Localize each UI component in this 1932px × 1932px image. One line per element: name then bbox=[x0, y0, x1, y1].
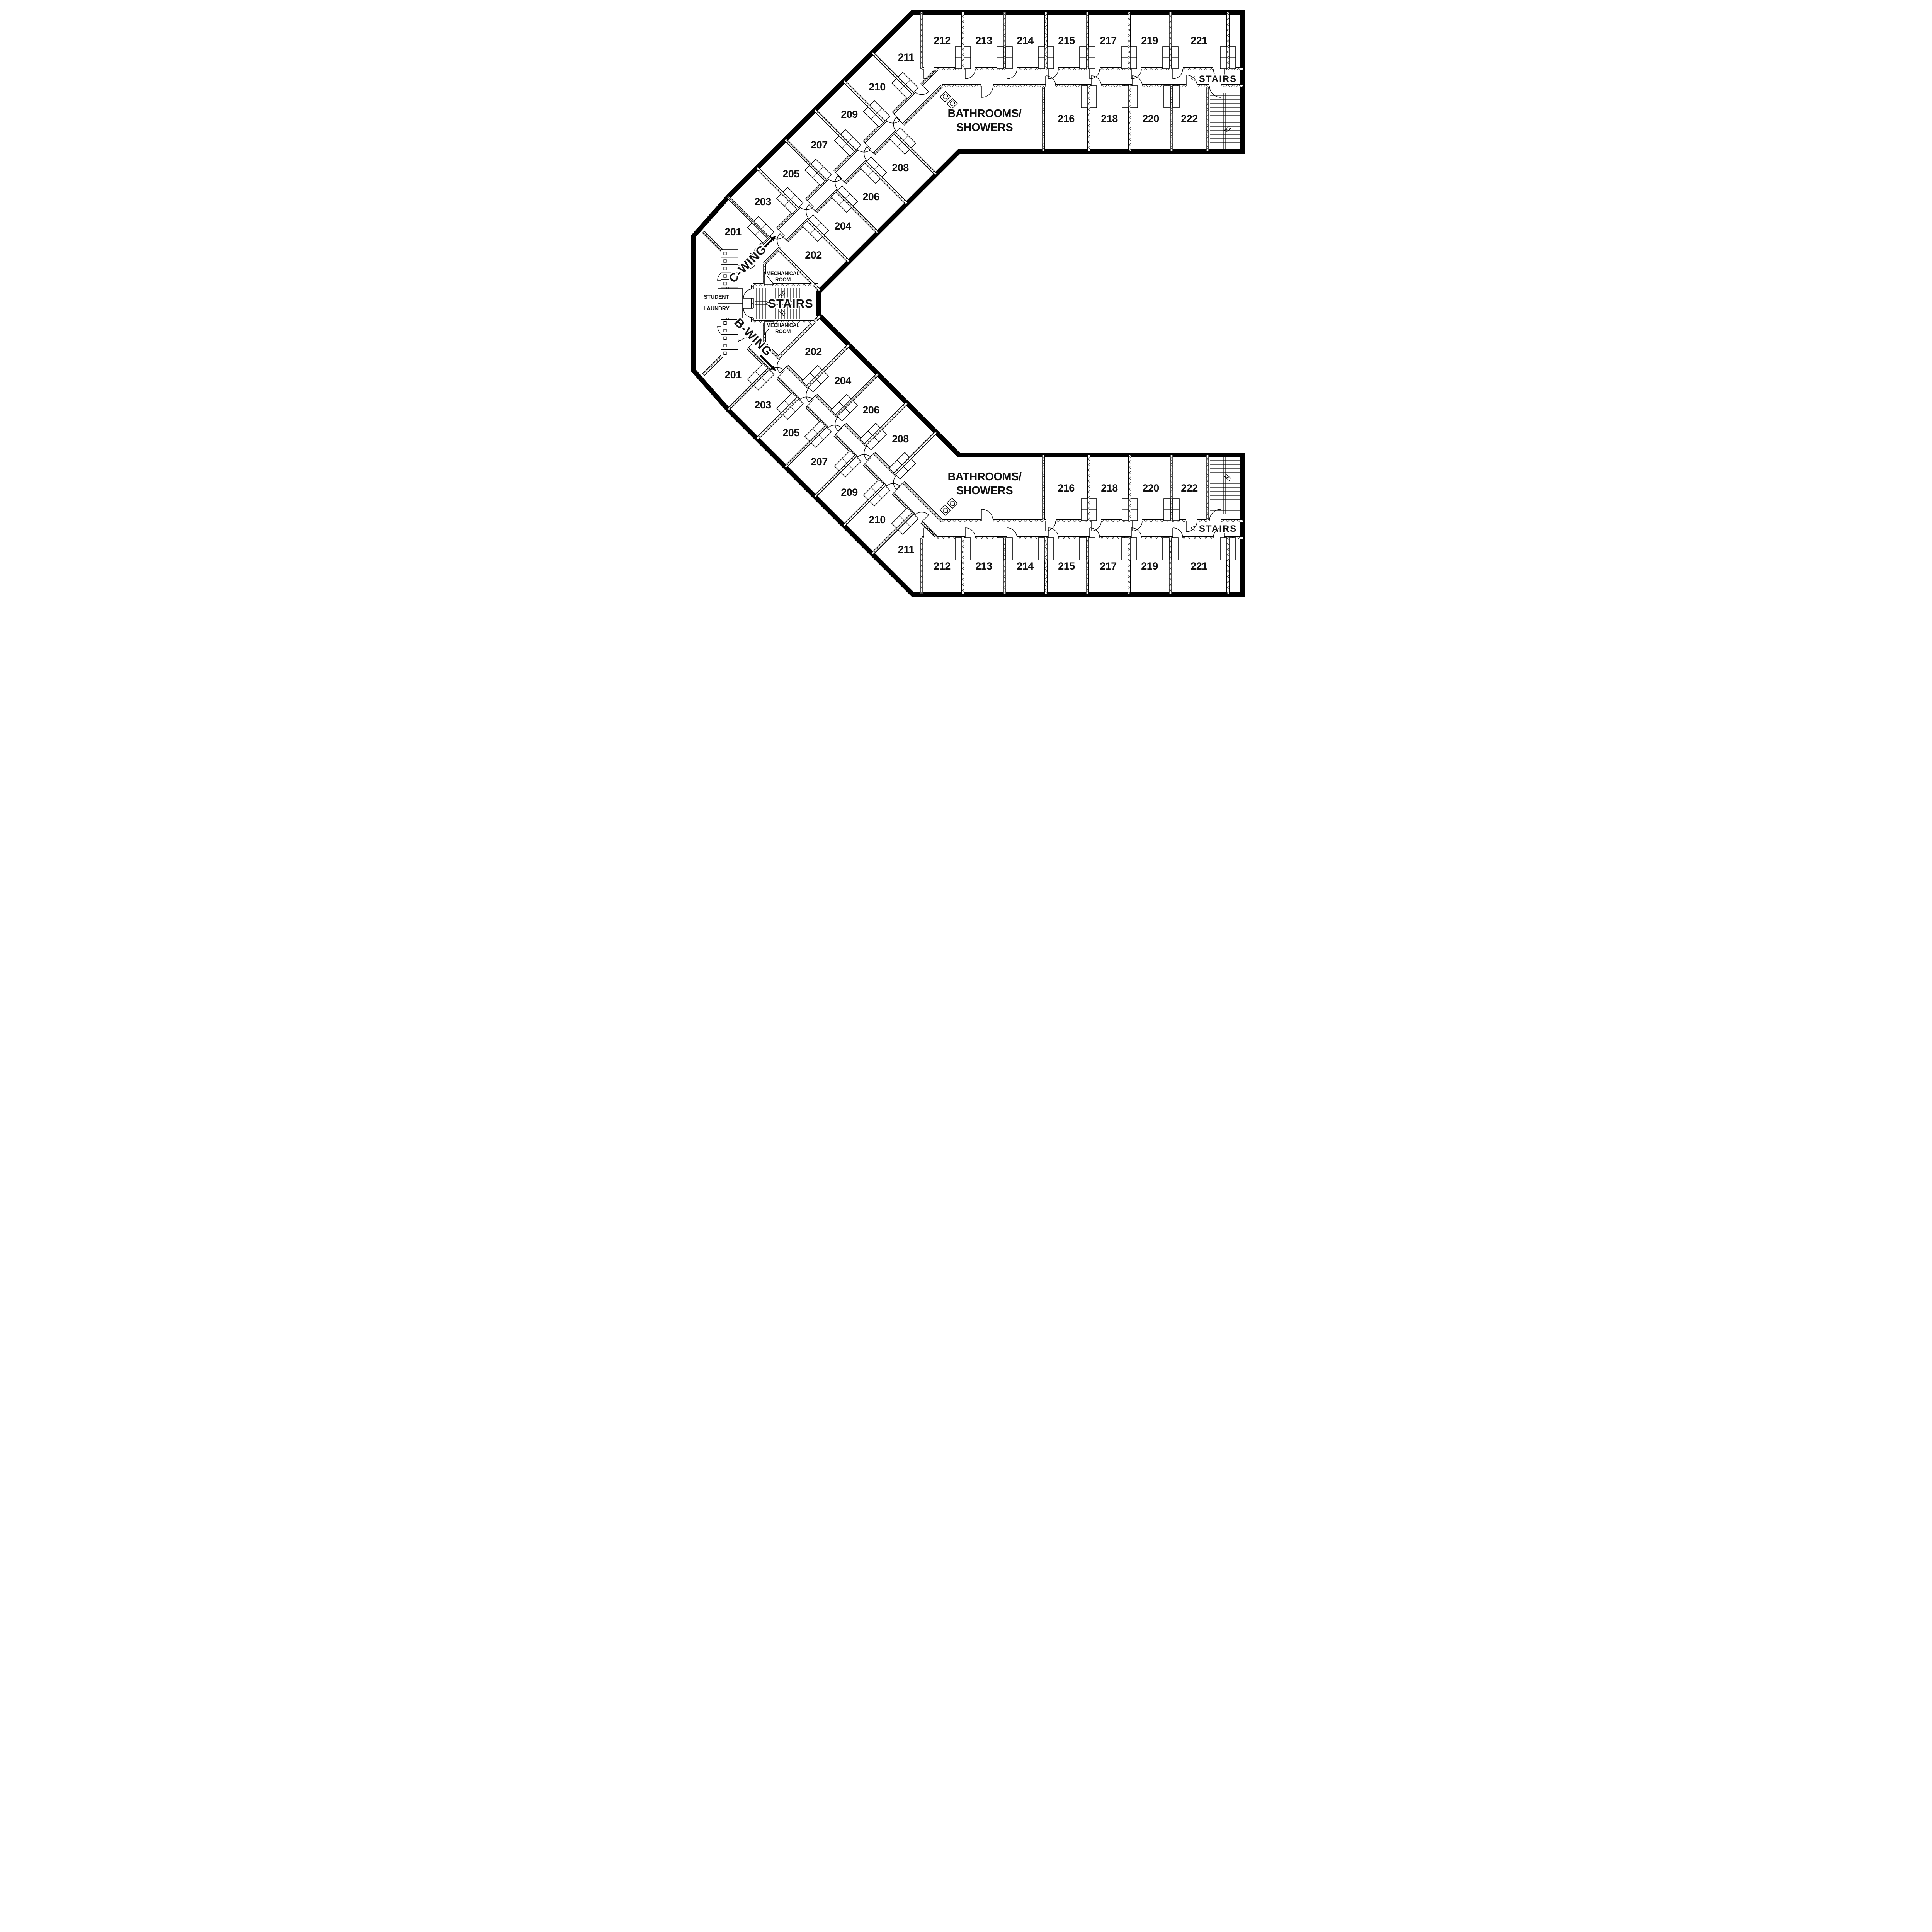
room-label-222-bottom: 222 bbox=[1181, 482, 1198, 494]
room-label-204-bottom: 204 bbox=[834, 375, 851, 386]
room-label-203-bottom: 203 bbox=[754, 399, 771, 411]
room-label-212-bottom: 212 bbox=[934, 560, 951, 572]
student-laundry-line1: STUDENT bbox=[704, 294, 730, 300]
c-wing-geometry bbox=[693, 12, 1243, 303]
student-laundry-line2: LAUNDRY bbox=[704, 306, 730, 312]
room-label-210-bottom: 210 bbox=[869, 514, 886, 526]
room-label-208-top: 208 bbox=[892, 162, 909, 173]
room-label-219-bottom: 219 bbox=[1141, 560, 1158, 572]
room-label-209-bottom: 209 bbox=[841, 486, 858, 498]
bathrooms-label-top-line2: SHOWERS bbox=[956, 121, 1013, 134]
room-label-211-top: 211 bbox=[898, 51, 915, 63]
bathroom-sinks bbox=[940, 92, 957, 109]
room-label-202-bottom: 202 bbox=[805, 346, 822, 357]
room-label-207-top: 207 bbox=[811, 139, 828, 151]
room-label-211-bottom: 211 bbox=[898, 544, 915, 555]
room-label-205-bottom: 205 bbox=[782, 427, 799, 439]
room-label-220-top: 220 bbox=[1142, 113, 1159, 124]
b-wing-geometry bbox=[693, 303, 1243, 594]
room-label-201-bottom: 201 bbox=[724, 369, 742, 381]
mechanical-room-bottom-line2: ROOM bbox=[775, 328, 791, 334]
room-label-206-bottom: 206 bbox=[862, 404, 879, 416]
mechanical-room-top-line2: ROOM bbox=[775, 277, 791, 282]
bathrooms-label-bottom-line2: SHOWERS bbox=[956, 485, 1013, 497]
room-label-202-top: 202 bbox=[805, 249, 822, 261]
floor-plan-page: 211 210 209 207 205 203 201 208 206 204 … bbox=[684, 0, 1248, 607]
room-label-203-top: 203 bbox=[754, 196, 771, 207]
room-label-219-top: 219 bbox=[1141, 35, 1158, 46]
mechanical-room-top-line1: MECHANICAL bbox=[766, 270, 799, 276]
room-label-218-bottom: 218 bbox=[1101, 482, 1118, 494]
room-label-217-bottom: 217 bbox=[1100, 560, 1117, 572]
bathrooms-label-top-line1: BATHROOMS/ bbox=[947, 107, 1021, 120]
room-label-216-bottom: 216 bbox=[1058, 482, 1075, 494]
stairs-label-top-right: STAIRS bbox=[1199, 74, 1237, 84]
mechanical-room-bottom-line1: MECHANICAL bbox=[766, 322, 799, 328]
bathrooms-label-bottom-line1: BATHROOMS/ bbox=[947, 471, 1021, 483]
room-label-217-top: 217 bbox=[1100, 35, 1117, 46]
room-label-214-top: 214 bbox=[1017, 35, 1034, 46]
room-label-215-bottom: 215 bbox=[1058, 560, 1075, 572]
stair-treads-right bbox=[1210, 93, 1240, 149]
dormitory-floor-plan: 211 210 209 207 205 203 201 208 206 204 … bbox=[684, 0, 1248, 607]
room-label-221-bottom: 221 bbox=[1190, 560, 1207, 572]
room-label-212-top: 212 bbox=[934, 35, 951, 46]
room-label-209-top: 209 bbox=[841, 109, 858, 120]
stairs-label-central: STAIRS bbox=[768, 297, 813, 310]
room-label-206-top: 206 bbox=[862, 191, 879, 202]
labels: 211 210 209 207 205 203 201 208 206 204 … bbox=[704, 35, 1237, 572]
room-label-213-top: 213 bbox=[975, 35, 992, 46]
room-label-218-top: 218 bbox=[1101, 113, 1118, 124]
room-label-221-top: 221 bbox=[1190, 35, 1207, 46]
room-label-208-bottom: 208 bbox=[892, 433, 909, 445]
room-label-207-bottom: 207 bbox=[811, 456, 828, 468]
room-label-214-bottom: 214 bbox=[1017, 560, 1034, 572]
room-label-220-bottom: 220 bbox=[1142, 482, 1159, 494]
room-label-205-top: 205 bbox=[782, 168, 799, 180]
room-label-213-bottom: 213 bbox=[975, 560, 992, 572]
room-label-201-top: 201 bbox=[724, 226, 742, 238]
stairs-label-bottom-right: STAIRS bbox=[1199, 524, 1237, 534]
room-label-222-top: 222 bbox=[1181, 113, 1198, 124]
room-label-210-top: 210 bbox=[869, 81, 886, 93]
room-label-204-top: 204 bbox=[834, 220, 851, 232]
interior-walls bbox=[703, 12, 1243, 303]
room-label-216-top: 216 bbox=[1058, 113, 1075, 124]
room-label-215-top: 215 bbox=[1058, 35, 1075, 46]
